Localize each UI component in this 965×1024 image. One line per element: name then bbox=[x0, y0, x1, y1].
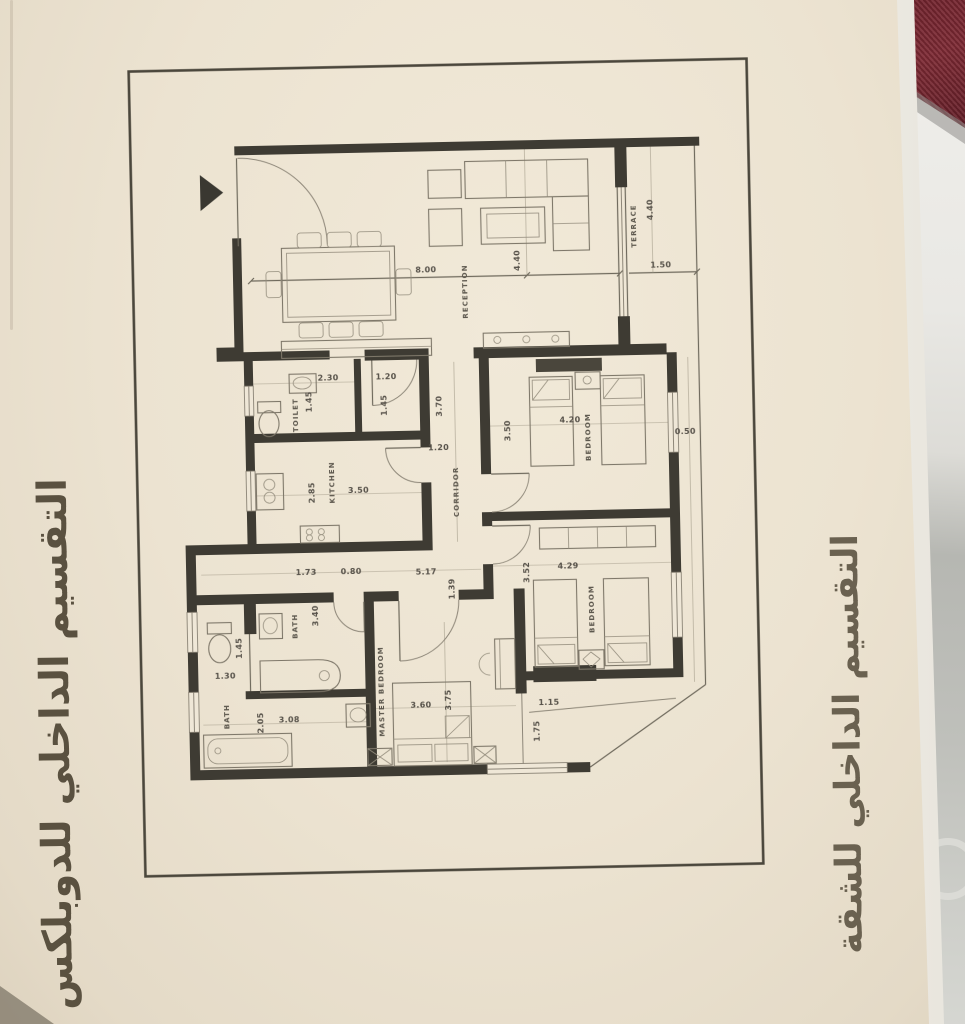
label-master-bedroom: MASTER BEDROOM bbox=[377, 646, 387, 737]
label-toilet: TOILET bbox=[292, 398, 301, 432]
dim-terrace-strip: 0.50 bbox=[675, 427, 696, 436]
dim-bedroom1-depth: 3.50 bbox=[503, 420, 512, 441]
kitchen-door bbox=[386, 448, 422, 484]
shower bbox=[260, 659, 341, 693]
wardrobe bbox=[536, 358, 602, 372]
label-bedroom2: BEDROOM bbox=[587, 585, 596, 633]
washbasin bbox=[259, 613, 283, 638]
dim-reception-depth: 4.40 bbox=[512, 250, 521, 271]
dim-bath-hall-width: 1.73 bbox=[296, 568, 317, 577]
dim-bedroom2-width: 4.29 bbox=[558, 561, 579, 570]
dim-balcony-width: 1.75 bbox=[532, 720, 541, 741]
caption-arabic-apartment: التقسيم الداخلي للشقة bbox=[825, 534, 871, 954]
paper-crease bbox=[10, 0, 13, 330]
dim-bath2-depth: 2.05 bbox=[256, 712, 265, 733]
dim-master-depth: 3.75 bbox=[444, 689, 453, 710]
label-bath1: BATH bbox=[291, 613, 300, 638]
wc-bowl bbox=[259, 411, 280, 437]
dim-bedroom2-depth: 3.52 bbox=[522, 562, 531, 583]
dim-bath-door: 0.80 bbox=[341, 567, 362, 576]
bedroom1-door bbox=[491, 473, 530, 512]
dim-corridor-length: 3.70 bbox=[434, 395, 443, 416]
label-corridor: CORRIDOR bbox=[452, 466, 461, 517]
double-bed bbox=[392, 682, 472, 767]
sofa-set bbox=[428, 159, 590, 253]
label-bedroom1: BEDROOM bbox=[584, 413, 593, 461]
chair bbox=[479, 653, 490, 675]
wc-tank bbox=[207, 623, 231, 635]
wardrobe bbox=[539, 526, 655, 549]
bed bbox=[603, 578, 650, 666]
caption-arabic-duplex: التقسيم الداخلي للدوبلكس bbox=[30, 478, 82, 1010]
label-kitchen: KITCHEN bbox=[328, 461, 337, 503]
bathtub bbox=[204, 733, 293, 768]
nightstand bbox=[474, 746, 496, 763]
dim-bath2-width: 3.08 bbox=[279, 715, 300, 724]
dim-reception-width: 8.00 bbox=[415, 265, 436, 274]
dim-terrace-width: 1.50 bbox=[650, 260, 671, 269]
bedroom2-door bbox=[492, 525, 531, 564]
entrance-arrow-icon bbox=[200, 175, 224, 211]
dining-table bbox=[265, 231, 412, 339]
dim-bedroom1-width: 4.20 bbox=[559, 415, 580, 424]
dim-lobby-depth: 1.45 bbox=[379, 395, 388, 416]
terrace-window-rail bbox=[617, 187, 628, 316]
dim-bath2-wc-width: 1.30 bbox=[215, 671, 236, 680]
label-bath2: BATH bbox=[223, 704, 232, 729]
dim-toilet-width: 2.30 bbox=[318, 373, 339, 382]
master-bedroom-furniture bbox=[366, 639, 518, 767]
wc-bowl bbox=[208, 635, 231, 663]
dim-kitchen-width: 3.50 bbox=[348, 486, 369, 495]
coffee-table bbox=[481, 207, 546, 244]
dim-bath2-wc-depth: 1.45 bbox=[235, 638, 244, 659]
bed bbox=[533, 579, 578, 667]
dim-master-width: 3.60 bbox=[410, 700, 431, 709]
dim-lobby-width: 1.20 bbox=[376, 372, 397, 381]
dim-bath1-length: 3.40 bbox=[311, 605, 320, 626]
bath1-door bbox=[334, 602, 365, 633]
master-bedroom-door bbox=[399, 600, 460, 661]
desk bbox=[479, 639, 516, 690]
kitchen-fixtures bbox=[256, 472, 339, 544]
label-reception: RECEPTION bbox=[461, 264, 470, 318]
dim-kitchen-depth: 2.85 bbox=[307, 482, 316, 503]
photo-of-floor-plan-page: 8.00 4.40 RECEPTION TERRACE 4.40 1.50 0.… bbox=[0, 0, 965, 1024]
dim-toilet-depth: 1.45 bbox=[304, 391, 313, 412]
dim-balcony-depth: 1.15 bbox=[538, 698, 559, 707]
bed bbox=[600, 375, 646, 465]
floor-plan-drawing: 8.00 4.40 RECEPTION TERRACE 4.40 1.50 0.… bbox=[126, 56, 768, 881]
dim-corridor-lower-length: 5.17 bbox=[416, 567, 437, 576]
bath1-fixtures bbox=[259, 612, 341, 693]
label-terrace: TERRACE bbox=[630, 204, 639, 248]
plan-border-frame bbox=[129, 59, 764, 877]
dim-corridor-width: 1.20 bbox=[428, 443, 449, 452]
dim-corridor-lower-width: 1.39 bbox=[447, 578, 456, 599]
dim-terrace-depth: 4.40 bbox=[645, 199, 654, 220]
nightstand bbox=[575, 372, 600, 390]
